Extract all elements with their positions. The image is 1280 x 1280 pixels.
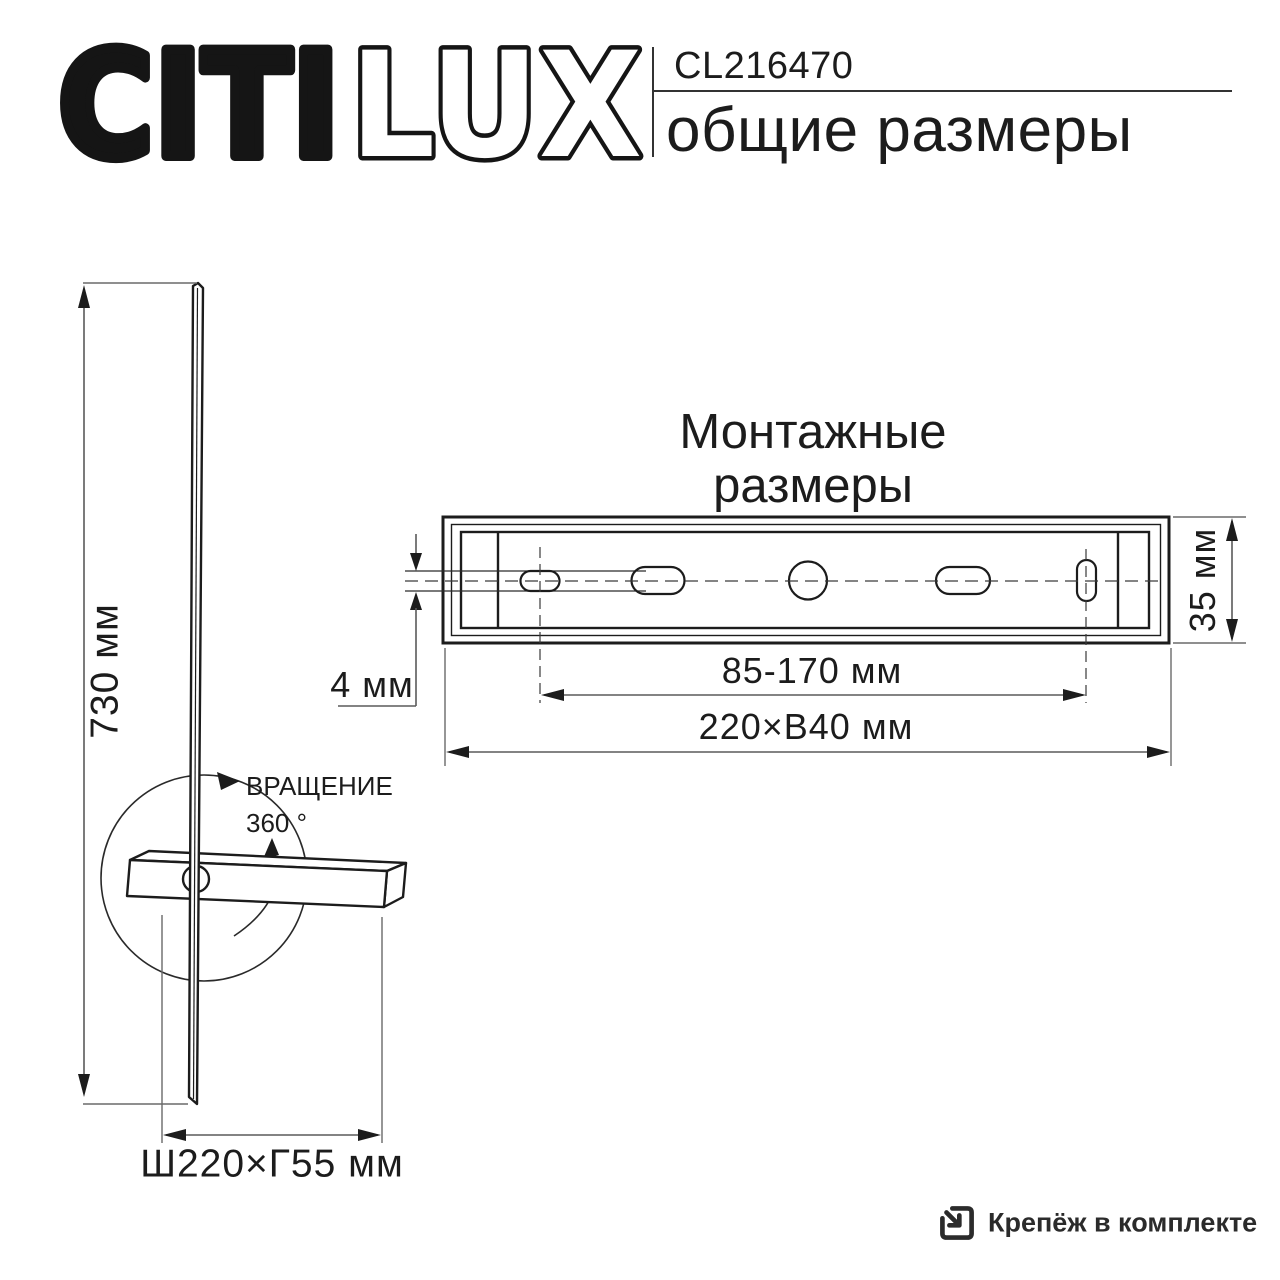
plate-height-label: 35 мм (1185, 528, 1221, 633)
rotation-annotation: ВРАЩЕНИЕ 360 ° (246, 772, 393, 839)
mounting-title-line2: размеры (679, 460, 946, 514)
rotation-annotation-line2: 360 ° (246, 809, 393, 839)
technical-drawing (0, 0, 1280, 1280)
height-dimension-label: 730 мм (86, 603, 125, 739)
mounting-title-line1: Монтажные (679, 406, 946, 460)
blade-thickness-label: 4 мм (330, 667, 414, 703)
mounting-title: Монтажные размеры (679, 406, 946, 514)
rotation-annotation-line1: ВРАЩЕНИЕ (246, 772, 393, 802)
spec-sheet: { "colors": { "background": "#ffffff", "… (0, 0, 1280, 1280)
plate-width-label: 220×В40 мм (699, 709, 914, 745)
fasteners-box-arrow-icon (936, 1202, 978, 1244)
footprint-dimension-label: Ш220×Г55 мм (140, 1145, 404, 1184)
hole-spacing-label: 85-170 мм (722, 653, 903, 689)
rotation-arrow-icon (217, 772, 240, 790)
fasteners-included-note: Крепёж в комплекте (988, 1210, 1257, 1237)
